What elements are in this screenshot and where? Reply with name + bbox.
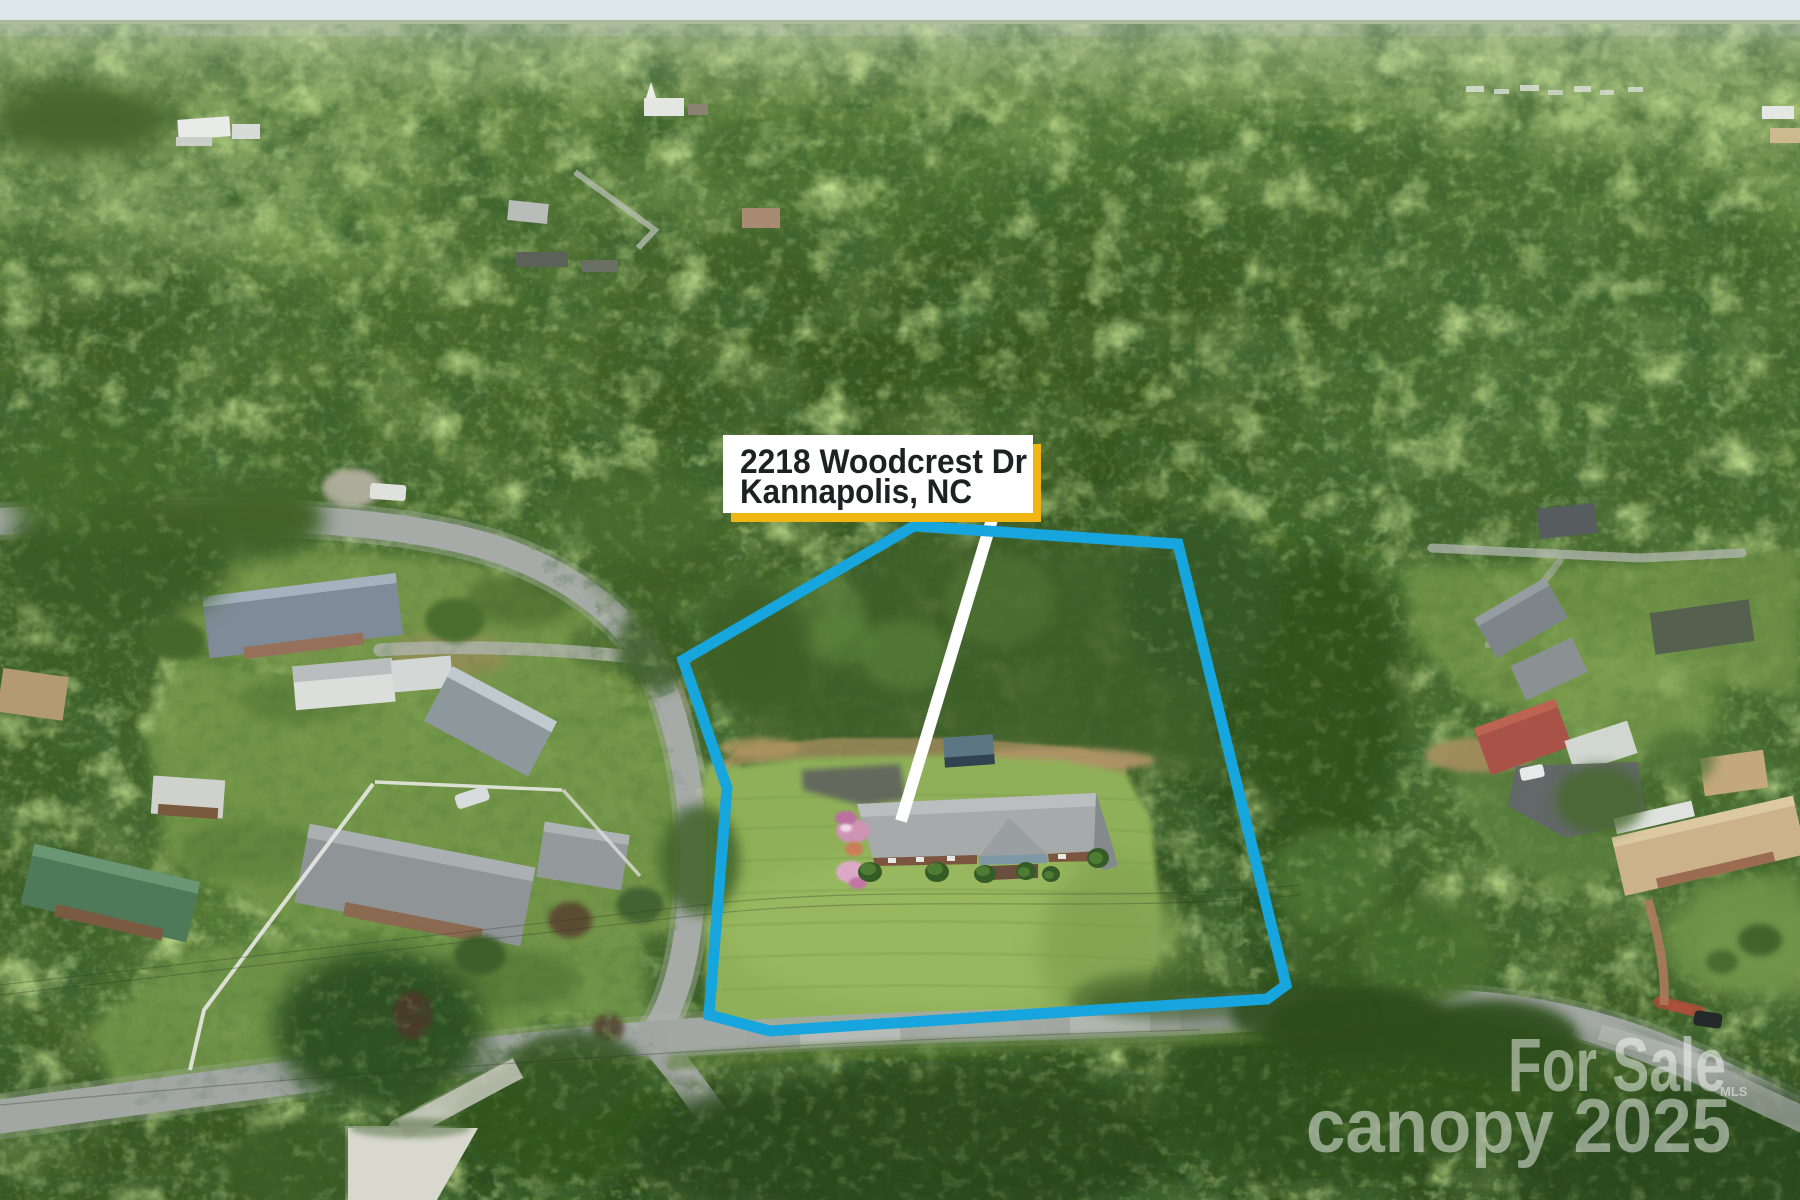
svg-text:canopy 2025: canopy 2025 [1306, 1084, 1731, 1169]
svg-text:Kannapolis, NC: Kannapolis, NC [740, 473, 972, 511]
svg-text:MLS: MLS [1720, 1084, 1748, 1099]
